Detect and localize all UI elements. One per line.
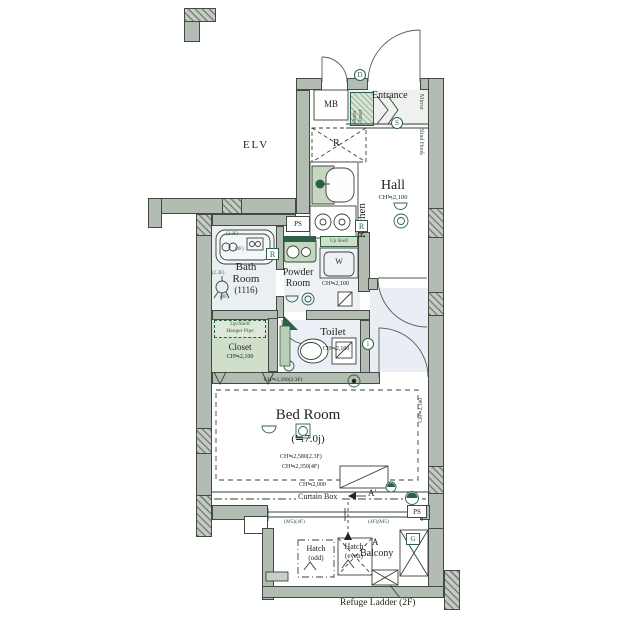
gas-mark: G xyxy=(406,533,420,545)
powder-ch: CH≒2,100 xyxy=(322,281,349,287)
balcony-hatch-odd-chevron xyxy=(304,562,316,570)
powder-wall-light xyxy=(286,296,298,302)
bedroom-size: (≒7.0j) xyxy=(266,434,350,445)
toilet-label: Toilet xyxy=(310,327,356,338)
outdoor-faucet-icon xyxy=(406,492,419,505)
hatch-odd-2: (odd) xyxy=(296,555,336,562)
step-mark: S xyxy=(391,117,403,129)
floor-plan: ELV MB Entrance Mirror Shoes Closet D S … xyxy=(0,0,640,640)
fridge-mark: R xyxy=(333,139,340,149)
tub-note-lower: (4F) xyxy=(235,247,244,252)
powder-label-1: Powder xyxy=(278,268,318,278)
closet-label: Closet xyxy=(214,343,266,352)
bedroom-door-arc xyxy=(379,328,428,377)
bedroom-label: Bed Room xyxy=(256,408,360,423)
intercom-mark: i xyxy=(362,338,374,350)
window-code-right: (4F)(M5) xyxy=(368,520,389,526)
up-shelf-label: Up Shelf xyxy=(320,239,358,244)
hall-label: Hall xyxy=(372,179,414,193)
downlight xyxy=(348,375,360,387)
balcony-drain xyxy=(266,572,288,581)
washbasin xyxy=(284,236,316,262)
stove xyxy=(310,206,356,238)
powder-ceiling-light xyxy=(302,293,314,305)
window-code-left: (M5)(4F) xyxy=(284,520,305,526)
shoes-closet-label: Shoes Closet xyxy=(352,93,364,125)
ac-unit xyxy=(340,466,388,488)
mb-door-arc xyxy=(322,57,347,82)
bedroom-ch1: CH≒2,580(2.3F) xyxy=(280,454,322,460)
elv-label: ELV xyxy=(226,140,286,151)
mirror-label: Mirror xyxy=(418,94,424,110)
hatch-odd-1: Hatch xyxy=(296,545,336,553)
toilet-ch: CH≒2,100 xyxy=(314,346,358,352)
bath-label-2: Room xyxy=(224,274,268,285)
bath-remote-mark: R xyxy=(266,248,279,260)
section-a: A xyxy=(372,538,379,547)
refuge-hatch-icon xyxy=(372,570,400,598)
powder-label-2: Room xyxy=(278,279,318,289)
mb-label: MB xyxy=(314,100,348,109)
blind-hook-label: Blind Hook xyxy=(418,127,424,155)
balcony-label: Balcony xyxy=(360,549,393,559)
hall-ch: CH≒2,100 xyxy=(370,195,416,202)
kitchen-sink xyxy=(312,166,354,204)
ps-bottom: PS xyxy=(407,505,427,518)
washer-mark: W xyxy=(332,258,346,266)
curtain-box-label: Curtain Box xyxy=(296,493,339,501)
hall-door-arc xyxy=(378,278,427,327)
bedroom-wall-light xyxy=(262,426,276,433)
entrance-label: Entrance xyxy=(372,91,408,101)
closet-shelf-note-2: Hanger Pipe xyxy=(214,329,266,335)
hall-ceiling-light xyxy=(394,214,408,228)
bedroom-ch-right: CH≒2,100 xyxy=(419,398,425,423)
tub-note-upper: (2.3F) xyxy=(226,232,238,237)
bedroom-ch-top: CH≒2,280(2.3F) xyxy=(264,378,302,384)
shower-note-upper: (2.3F) xyxy=(212,271,224,276)
refuge-ladder-label: Refuge Ladder (2F) xyxy=(340,599,415,609)
bath-label-1: Bath xyxy=(224,262,268,273)
ac-outlet-icon xyxy=(386,482,396,492)
bedroom-ch3: CH≒2,000 xyxy=(299,482,326,488)
section-a-prime: A' xyxy=(368,489,376,498)
hall-wall-light xyxy=(394,203,407,210)
entrance-door-arc xyxy=(368,30,420,82)
toilet-shelf xyxy=(280,326,290,366)
bath-label-3: (1116) xyxy=(224,286,268,295)
door-mark: D xyxy=(354,69,366,81)
kitchen-remote-mark: R xyxy=(355,220,368,232)
powder-door-stop xyxy=(338,292,352,306)
closet-shelf-note-1: Up/Shelf xyxy=(214,322,266,328)
shower-note-lower: (4F) xyxy=(220,295,229,300)
section-line xyxy=(348,496,366,540)
ps-top: PS xyxy=(286,216,310,232)
bedroom-ch2: CH≒2,350(4F) xyxy=(282,464,319,470)
closet-ch: CH≒2,100 xyxy=(214,354,266,360)
